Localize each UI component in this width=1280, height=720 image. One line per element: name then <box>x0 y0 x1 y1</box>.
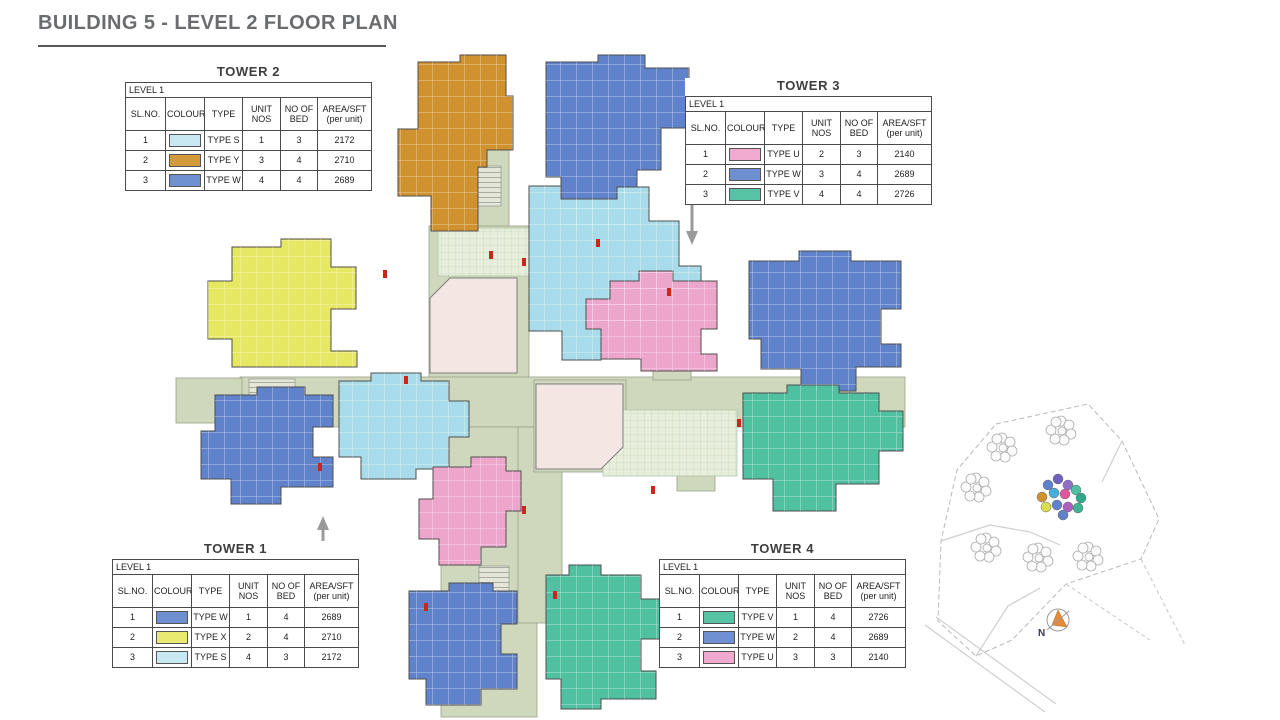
cell-type: TYPE W <box>739 628 777 648</box>
cell-slno: 3 <box>686 185 726 205</box>
cell-beds: 4 <box>268 608 305 628</box>
cell-area: 2689 <box>878 165 932 185</box>
cell-units: 1 <box>230 608 268 628</box>
cell-beds: 3 <box>268 648 305 668</box>
cell-area: 2140 <box>852 648 906 668</box>
table-row: 2 TYPE W 2 4 2689 <box>660 628 906 648</box>
table-row: 3 TYPE V 4 4 2726 <box>686 185 932 205</box>
hall-upper <box>430 278 517 373</box>
tower3-direction-arrow-icon <box>684 203 700 252</box>
cell-area: 2710 <box>305 628 359 648</box>
cell-area: 2726 <box>852 608 906 628</box>
level-label: LEVEL 1 <box>113 560 359 575</box>
level-label: LEVEL 1 <box>660 560 906 575</box>
cell-units: 3 <box>243 151 281 171</box>
cell-area: 2726 <box>878 185 932 205</box>
table-row: 3 TYPE U 3 3 2140 <box>660 648 906 668</box>
table-row: 1 TYPE V 1 4 2726 <box>660 608 906 628</box>
cell-colour <box>153 628 192 648</box>
cell-units: 2 <box>803 145 841 165</box>
colour-swatch <box>729 148 761 161</box>
cell-units: 4 <box>243 171 281 191</box>
cell-colour <box>166 151 205 171</box>
col-type: TYPE <box>192 575 230 608</box>
cell-slno: 2 <box>686 165 726 185</box>
tower4-table: LEVEL 1 SL.NO. COLOUR TYPE UNIT NOS NO O… <box>659 559 906 668</box>
cell-area: 2172 <box>318 131 372 151</box>
north-compass-icon: N <box>1038 609 1069 639</box>
col-no-of-bed: NO OF BED <box>281 98 318 131</box>
cell-slno: 2 <box>113 628 153 648</box>
cell-units: 2 <box>230 628 268 648</box>
cell-beds: 4 <box>841 165 878 185</box>
col-colour: COLOUR <box>700 575 739 608</box>
cell-slno: 2 <box>660 628 700 648</box>
site-key-map: N <box>925 404 1185 712</box>
col-slno: SL.NO. <box>113 575 153 608</box>
col-unit-nos: UNIT NOS <box>243 98 281 131</box>
col-colour: COLOUR <box>153 575 192 608</box>
cell-beds: 4 <box>281 151 318 171</box>
colour-swatch <box>729 168 761 181</box>
table-row: 2 TYPE Y 3 4 2710 <box>126 151 372 171</box>
cell-units: 4 <box>803 185 841 205</box>
tower3-title: TOWER 3 <box>685 78 932 93</box>
cell-colour <box>726 185 765 205</box>
colour-swatch <box>156 631 188 644</box>
level-label: LEVEL 1 <box>126 83 372 98</box>
cell-beds: 4 <box>815 628 852 648</box>
col-unit-nos: UNIT NOS <box>777 575 815 608</box>
cell-colour <box>726 165 765 185</box>
cell-colour <box>166 171 205 191</box>
table-row: 2 TYPE X 2 4 2710 <box>113 628 359 648</box>
tower4-title: TOWER 4 <box>659 541 906 556</box>
cell-area: 2710 <box>318 151 372 171</box>
cell-units: 3 <box>803 165 841 185</box>
cell-beds: 3 <box>841 145 878 165</box>
hall-lower <box>536 384 623 469</box>
cell-beds: 4 <box>281 171 318 191</box>
col-no-of-bed: NO OF BED <box>841 112 878 145</box>
cell-area: 2689 <box>318 171 372 191</box>
table-row: 3 TYPE S 4 3 2172 <box>113 648 359 668</box>
tower1-table: LEVEL 1 SL.NO. COLOUR TYPE UNIT NOS NO O… <box>112 559 359 668</box>
cell-slno: 1 <box>660 608 700 628</box>
col-area: AREA/SFT (per unit) <box>878 112 932 145</box>
cell-units: 1 <box>777 608 815 628</box>
cell-area: 2689 <box>305 608 359 628</box>
cell-beds: 4 <box>268 628 305 648</box>
col-type: TYPE <box>205 98 243 131</box>
table-row: 1 TYPE W 1 4 2689 <box>113 608 359 628</box>
cell-type: TYPE V <box>765 185 803 205</box>
col-slno: SL.NO. <box>660 575 700 608</box>
col-type: TYPE <box>765 112 803 145</box>
cell-colour <box>166 131 205 151</box>
tower1-title: TOWER 1 <box>112 541 359 556</box>
cell-colour <box>700 648 739 668</box>
cell-type: TYPE S <box>192 648 230 668</box>
cell-slno: 3 <box>113 648 153 668</box>
tower2-table: LEVEL 1 SL.NO. COLOUR TYPE UNIT NOS NO O… <box>125 82 372 191</box>
colour-swatch <box>703 611 735 624</box>
col-colour: COLOUR <box>726 112 765 145</box>
cell-type: TYPE X <box>192 628 230 648</box>
col-slno: SL.NO. <box>126 98 166 131</box>
cell-type: TYPE W <box>765 165 803 185</box>
colour-swatch <box>169 154 201 167</box>
col-no-of-bed: NO OF BED <box>268 575 305 608</box>
cell-type: TYPE U <box>739 648 777 668</box>
col-colour: COLOUR <box>166 98 205 131</box>
colour-swatch <box>703 631 735 644</box>
cell-colour <box>153 608 192 628</box>
cell-beds: 3 <box>815 648 852 668</box>
cell-colour <box>700 628 739 648</box>
level-label: LEVEL 1 <box>686 97 932 112</box>
cell-beds: 3 <box>281 131 318 151</box>
cell-colour <box>153 648 192 668</box>
col-type: TYPE <box>739 575 777 608</box>
cell-type: TYPE V <box>739 608 777 628</box>
colour-swatch <box>169 174 201 187</box>
table-row: 1 TYPE U 2 3 2140 <box>686 145 932 165</box>
cell-type: TYPE S <box>205 131 243 151</box>
col-no-of-bed: NO OF BED <box>815 575 852 608</box>
col-area: AREA/SFT (per unit) <box>318 98 372 131</box>
cell-slno: 1 <box>126 131 166 151</box>
tower3-legend: TOWER 3 LEVEL 1 SL.NO. COLOUR TYPE UNIT … <box>685 78 932 205</box>
cell-area: 2689 <box>852 628 906 648</box>
tower2-title: TOWER 2 <box>125 64 372 79</box>
col-unit-nos: UNIT NOS <box>230 575 268 608</box>
tower3-table: LEVEL 1 SL.NO. COLOUR TYPE UNIT NOS NO O… <box>685 96 932 205</box>
table-row: 2 TYPE W 3 4 2689 <box>686 165 932 185</box>
tower2-legend: TOWER 2 LEVEL 1 SL.NO. COLOUR TYPE UNIT … <box>125 64 372 191</box>
cell-type: TYPE W <box>205 171 243 191</box>
cell-type: TYPE Y <box>205 151 243 171</box>
tower4-legend: TOWER 4 LEVEL 1 SL.NO. COLOUR TYPE UNIT … <box>659 541 906 668</box>
cell-type: TYPE W <box>192 608 230 628</box>
cell-slno: 2 <box>126 151 166 171</box>
cell-slno: 3 <box>660 648 700 668</box>
cell-beds: 4 <box>841 185 878 205</box>
cell-units: 1 <box>243 131 281 151</box>
colour-swatch <box>169 134 201 147</box>
cell-units: 2 <box>777 628 815 648</box>
col-unit-nos: UNIT NOS <box>803 112 841 145</box>
colour-swatch <box>729 188 761 201</box>
cell-area: 2172 <box>305 648 359 668</box>
cell-slno: 1 <box>113 608 153 628</box>
cell-colour <box>700 608 739 628</box>
colour-swatch <box>703 651 735 664</box>
col-slno: SL.NO. <box>686 112 726 145</box>
colour-swatch <box>156 611 188 624</box>
col-area: AREA/SFT (per unit) <box>852 575 906 608</box>
north-label: N <box>1038 628 1045 639</box>
table-row: 1 TYPE S 1 3 2172 <box>126 131 372 151</box>
cell-slno: 3 <box>126 171 166 191</box>
cell-beds: 4 <box>815 608 852 628</box>
cell-units: 3 <box>777 648 815 668</box>
cell-slno: 1 <box>686 145 726 165</box>
cell-colour <box>726 145 765 165</box>
cell-units: 4 <box>230 648 268 668</box>
colour-swatch <box>156 651 188 664</box>
table-row: 3 TYPE W 4 4 2689 <box>126 171 372 191</box>
col-area: AREA/SFT (per unit) <box>305 575 359 608</box>
tower1-legend: TOWER 1 LEVEL 1 SL.NO. COLOUR TYPE UNIT … <box>112 541 359 668</box>
cell-type: TYPE U <box>765 145 803 165</box>
cell-area: 2140 <box>878 145 932 165</box>
